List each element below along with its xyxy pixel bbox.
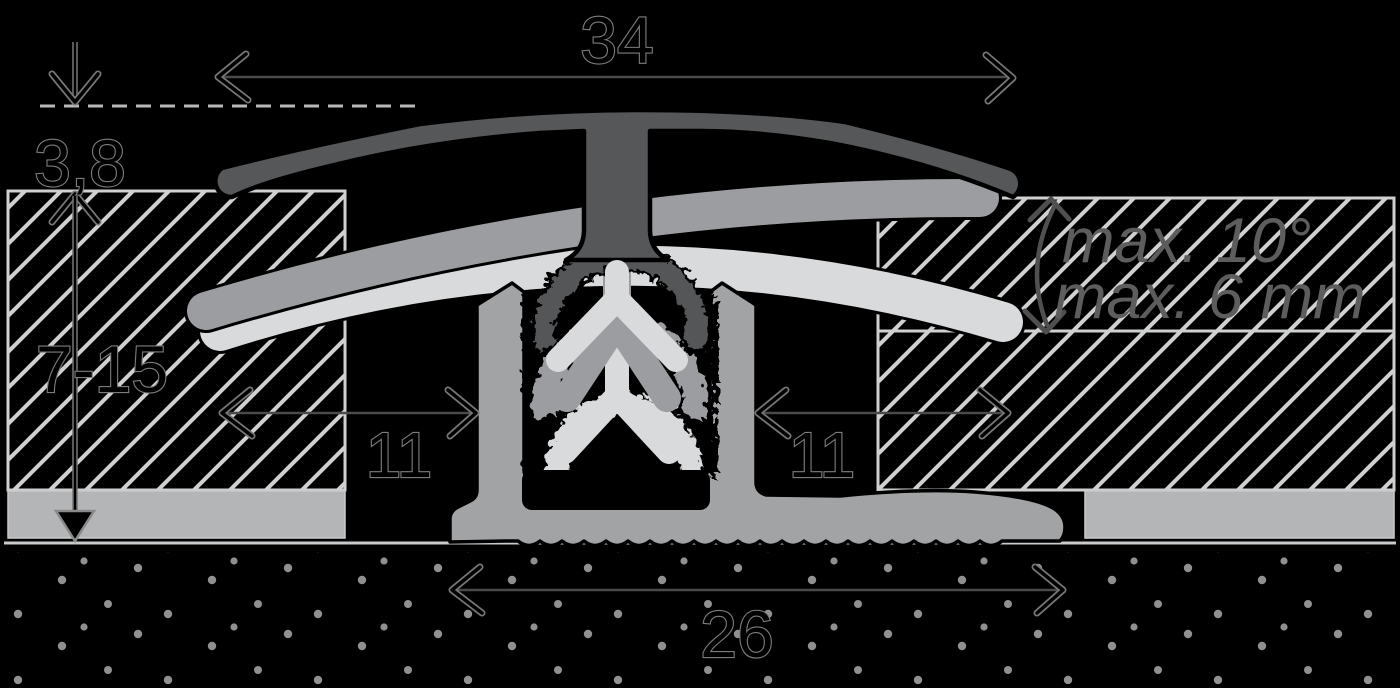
profile-drawing: 34 3,8 7-15 11 11 [0,0,1400,688]
note-max-offset: max. 6 mm [1054,262,1366,332]
technical-diagram: 34 3,8 7-15 11 11 [0,0,1400,688]
dim-11r-label: 11 [789,419,855,491]
dim-26-label: 26 [700,597,773,671]
underlay-right [1085,491,1394,538]
base-chamber [522,470,710,510]
dim-11l-label: 11 [366,419,432,491]
dim-34-label: 34 [580,3,653,77]
dim-38-label: 3,8 [34,126,126,200]
dim-715-label: 7-15 [36,332,168,406]
